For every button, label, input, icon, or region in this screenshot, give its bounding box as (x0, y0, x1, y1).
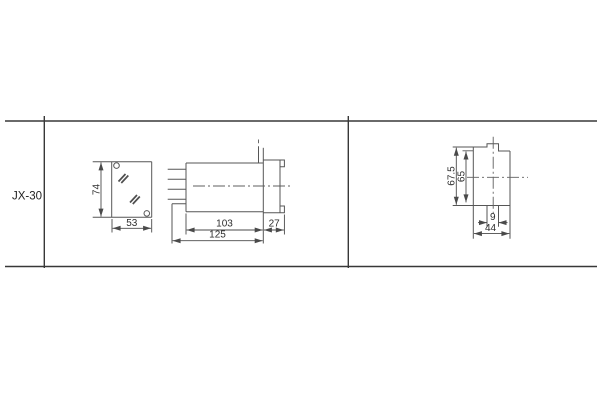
hatch-mark-upper (119, 174, 129, 183)
dim-text-125: 125 (209, 229, 226, 240)
outline-drawing-sheet: JX-30 74 53 (0, 0, 600, 400)
dim-text-103: 103 (216, 219, 233, 230)
dim-text-27: 27 (269, 219, 281, 230)
mounting-hole-top-left (114, 163, 120, 169)
rear-view: 67.5 65 9 44 (447, 137, 528, 239)
dim-text-74: 74 (91, 184, 102, 196)
drawing-svg: JX-30 74 53 (0, 0, 600, 400)
rear-top-profile (453, 144, 510, 151)
front-view: 74 53 (91, 162, 151, 233)
rear-bracket (172, 204, 186, 244)
mounting-hole-bottom-right (144, 211, 150, 217)
dim-text-44: 44 (485, 223, 497, 234)
side-view: 103 27 125 (168, 140, 290, 244)
terminal-pins (168, 169, 186, 199)
model-label: JX-30 (12, 191, 42, 203)
dim-text-53: 53 (126, 218, 138, 229)
side-body-outline (186, 163, 263, 212)
dim-text-9: 9 (490, 212, 496, 223)
hatch-mark-lower (130, 195, 140, 204)
dim-text-65: 65 (456, 171, 467, 183)
